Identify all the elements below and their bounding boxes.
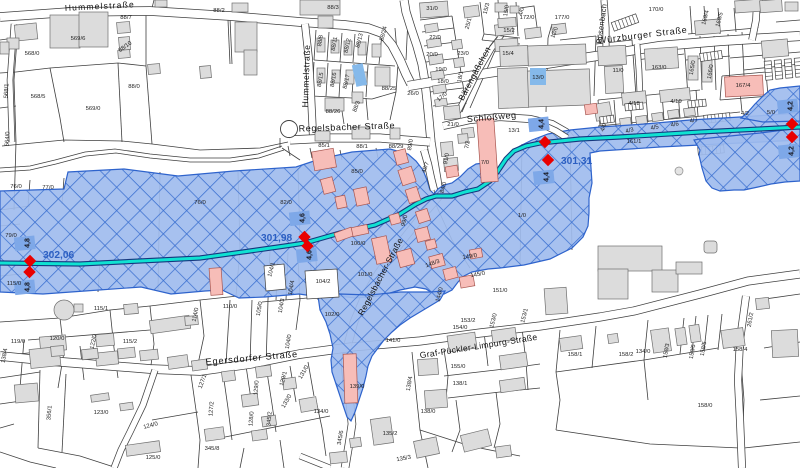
svg-text:158/4: 158/4	[733, 347, 748, 353]
svg-text:158/2: 158/2	[619, 352, 634, 358]
svg-text:79/0: 79/0	[5, 233, 17, 239]
svg-text:19/0: 19/0	[435, 67, 447, 73]
svg-text:22/0: 22/0	[429, 35, 441, 41]
svg-text:134/0: 134/0	[636, 349, 651, 355]
svg-text:4,4: 4,4	[544, 172, 551, 182]
svg-text:125/0: 125/0	[146, 455, 161, 461]
svg-text:172/0: 172/0	[520, 15, 535, 21]
svg-text:177/0: 177/0	[555, 15, 570, 21]
svg-text:301,98: 301,98	[261, 233, 292, 244]
svg-text:170/0: 170/0	[649, 7, 664, 13]
svg-text:569/6: 569/6	[71, 36, 86, 42]
svg-text:21/0: 21/0	[447, 122, 459, 128]
svg-text:88/29: 88/29	[389, 144, 404, 150]
svg-text:4,6: 4,6	[300, 213, 307, 223]
svg-text:119/0: 119/0	[11, 339, 26, 345]
svg-text:115/2: 115/2	[123, 339, 137, 345]
svg-text:120/0: 120/0	[50, 336, 65, 342]
svg-text:100/0: 100/0	[351, 241, 366, 247]
svg-text:20/0: 20/0	[426, 52, 438, 58]
svg-text:161/1: 161/1	[627, 139, 642, 145]
svg-text:31/0: 31/0	[426, 6, 438, 12]
svg-text:155/0: 155/0	[451, 364, 466, 370]
svg-text:139/0: 139/0	[350, 384, 365, 390]
svg-text:13/1: 13/1	[508, 128, 519, 134]
svg-text:4/19: 4/19	[670, 99, 681, 105]
svg-text:88/7: 88/7	[120, 15, 131, 21]
svg-text:4,2: 4,2	[788, 101, 795, 111]
svg-text:569/0: 569/0	[86, 106, 101, 112]
svg-text:1/0: 1/0	[518, 213, 527, 219]
svg-text:4/2: 4/2	[741, 111, 749, 117]
svg-text:15/4: 15/4	[502, 51, 514, 57]
svg-text:568/0: 568/0	[25, 51, 40, 57]
svg-text:102/0: 102/0	[325, 312, 340, 318]
svg-text:26/0: 26/0	[407, 91, 419, 97]
svg-text:345/2: 345/2	[266, 411, 273, 426]
svg-text:11/0: 11/0	[612, 68, 624, 74]
svg-text:154/0: 154/0	[453, 325, 468, 331]
svg-text:110/0: 110/0	[223, 304, 238, 310]
svg-text:88/3: 88/3	[327, 5, 339, 11]
svg-text:115/0: 115/0	[7, 281, 22, 287]
svg-text:4,8: 4,8	[25, 238, 32, 248]
svg-text:88/1: 88/1	[356, 144, 367, 150]
svg-text:77/0: 77/0	[42, 185, 54, 191]
svg-text:13/0: 13/0	[532, 75, 544, 81]
svg-text:115/1: 115/1	[94, 306, 108, 312]
svg-text:138/1: 138/1	[453, 381, 468, 387]
svg-text:85/0: 85/0	[351, 169, 363, 175]
svg-text:158/1: 158/1	[568, 352, 583, 358]
svg-text:153/2: 153/2	[461, 318, 476, 324]
svg-text:88/25: 88/25	[382, 86, 397, 92]
svg-text:18/0: 18/0	[437, 79, 449, 85]
svg-text:123/0: 123/0	[94, 410, 109, 416]
svg-text:5/0: 5/0	[767, 110, 776, 116]
svg-text:104/2: 104/2	[316, 279, 331, 285]
svg-text:134/0: 134/0	[314, 409, 329, 415]
svg-text:88/0: 88/0	[128, 84, 140, 90]
svg-text:302,06: 302,06	[43, 250, 74, 261]
svg-text:82/0: 82/0	[280, 200, 292, 206]
svg-text:76/0: 76/0	[194, 200, 206, 206]
svg-text:151/0: 151/0	[493, 288, 508, 294]
svg-text:127/2: 127/2	[208, 401, 215, 416]
svg-text:4/18: 4/18	[628, 101, 640, 107]
svg-text:4,2: 4,2	[789, 146, 796, 156]
svg-text:135/2: 135/2	[383, 431, 398, 437]
svg-text:101/0: 101/0	[358, 272, 373, 278]
svg-text:85/1: 85/1	[318, 143, 329, 149]
svg-text:88/26: 88/26	[326, 109, 341, 115]
svg-text:7/0: 7/0	[481, 160, 490, 166]
svg-text:167/4: 167/4	[736, 83, 751, 89]
svg-text:88/2: 88/2	[213, 8, 224, 14]
svg-text:138/0: 138/0	[421, 409, 436, 415]
svg-text:568/5: 568/5	[31, 94, 46, 100]
svg-text:564/0: 564/0	[5, 131, 12, 147]
svg-text:568/1: 568/1	[4, 83, 11, 98]
svg-text:345/8: 345/8	[205, 446, 220, 452]
svg-text:15/2: 15/2	[503, 28, 514, 34]
svg-text:301,31: 301,31	[561, 156, 592, 167]
svg-text:158/0: 158/0	[698, 403, 713, 409]
svg-text:76/0: 76/0	[10, 184, 22, 190]
svg-text:141/0: 141/0	[386, 338, 401, 344]
svg-text:23/0: 23/0	[457, 51, 469, 57]
svg-text:4,8: 4,8	[25, 282, 32, 292]
svg-text:356/1: 356/1	[46, 405, 53, 420]
svg-text:163/0: 163/0	[652, 65, 667, 71]
svg-text:4,4: 4,4	[539, 119, 546, 129]
